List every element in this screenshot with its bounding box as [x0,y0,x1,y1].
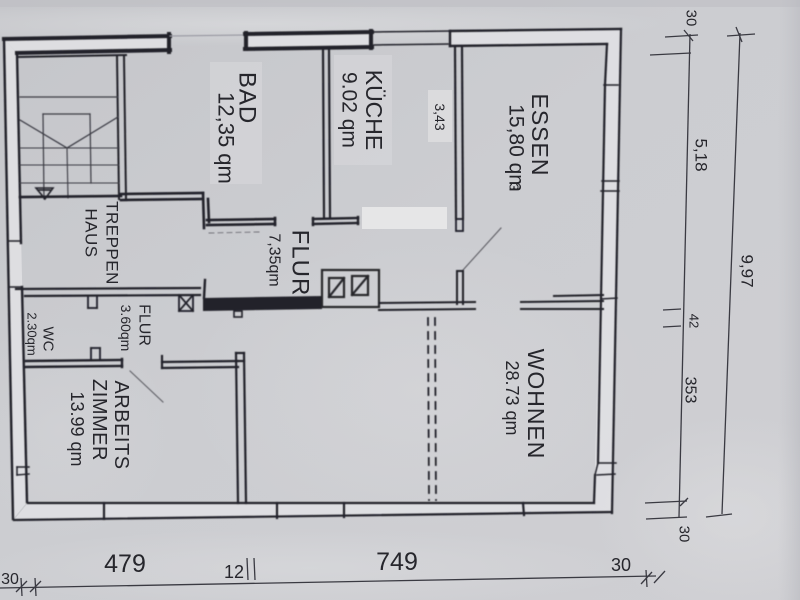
svg-text:30: 30 [676,526,693,543]
svg-text:KÜCHE: KÜCHE [361,70,387,151]
svg-text:HAUS: HAUS [82,208,101,257]
svg-text:749: 749 [376,548,418,576]
svg-text:13.99 qm: 13.99 qm [67,391,87,466]
svg-text:ESSEN: ESSEN [527,94,553,177]
svg-text:WC: WC [40,327,57,352]
svg-text:15,80 qm: 15,80 qm [505,104,528,192]
svg-text:30: 30 [611,555,631,575]
svg-text:TREPPEN: TREPPEN [103,201,122,285]
svg-text:9,97: 9,97 [738,254,757,287]
svg-text:7,35qm: 7,35qm [266,233,283,286]
svg-text:30: 30 [683,10,700,27]
svg-text:2.30qm: 2.30qm [25,312,40,355]
svg-text:ARBEITS: ARBEITS [110,380,132,469]
svg-text:WOHNEN: WOHNEN [523,349,549,460]
svg-text:12: 12 [224,562,244,582]
svg-text:353: 353 [682,377,699,404]
svg-text:3,43: 3,43 [432,103,448,130]
svg-text:3.60qm: 3.60qm [118,305,134,352]
svg-text:479: 479 [104,550,146,578]
svg-text:9.02 qm: 9.02 qm [338,72,361,148]
svg-text:5,18: 5,18 [692,138,711,171]
svg-text:FLUR: FLUR [287,230,314,297]
svg-text:42: 42 [687,314,702,328]
svg-text:ZIMMER: ZIMMER [88,379,110,461]
svg-text:30: 30 [1,571,19,588]
svg-text:28.73 qm: 28.73 qm [502,360,522,435]
svg-text:FLUR: FLUR [136,304,153,346]
svg-text:12,35 qm: 12,35 qm [214,92,239,184]
